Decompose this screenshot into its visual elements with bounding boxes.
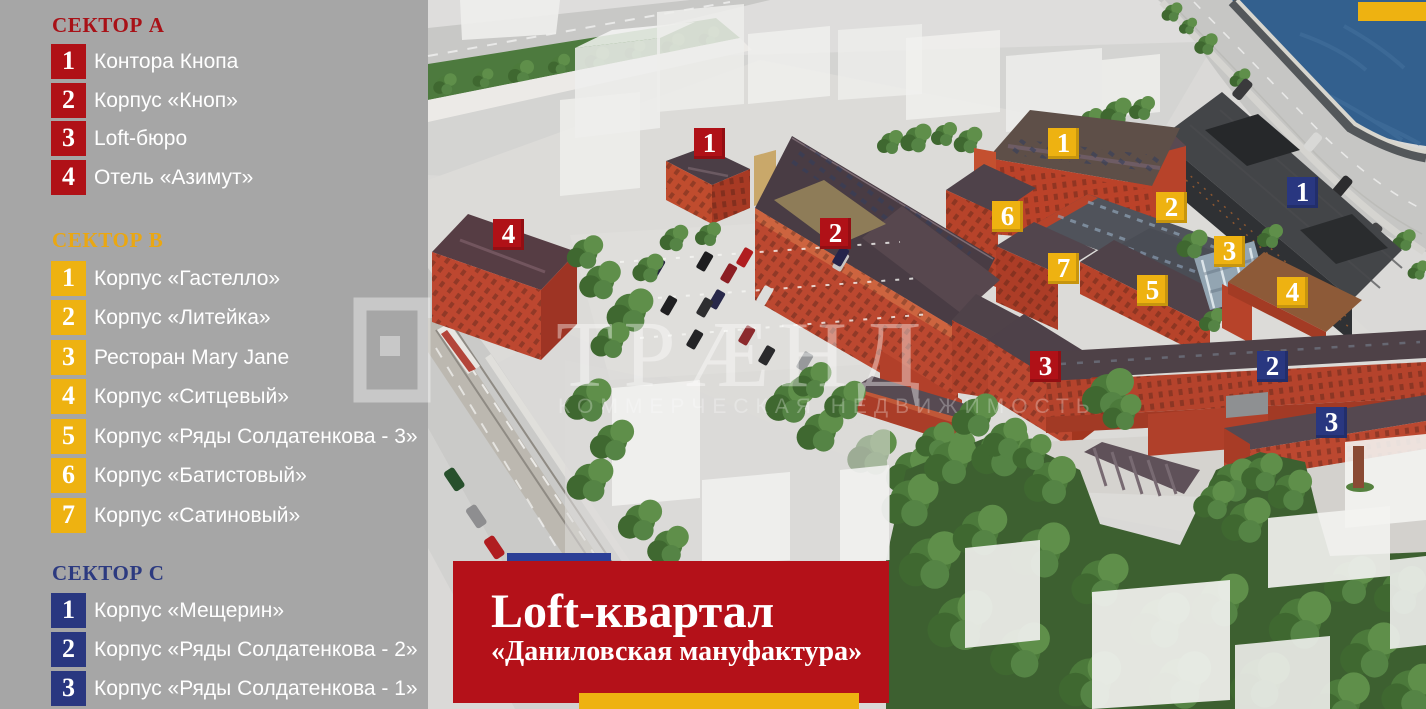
svg-text:КОММЕРЧЕСКАЯ НЕДВИЖИМОСТЬ: КОММЕРЧЕСКАЯ НЕДВИЖИМОСТЬ [558, 395, 1097, 418]
svg-text:ТРÆНД: ТРÆНД [556, 303, 931, 407]
